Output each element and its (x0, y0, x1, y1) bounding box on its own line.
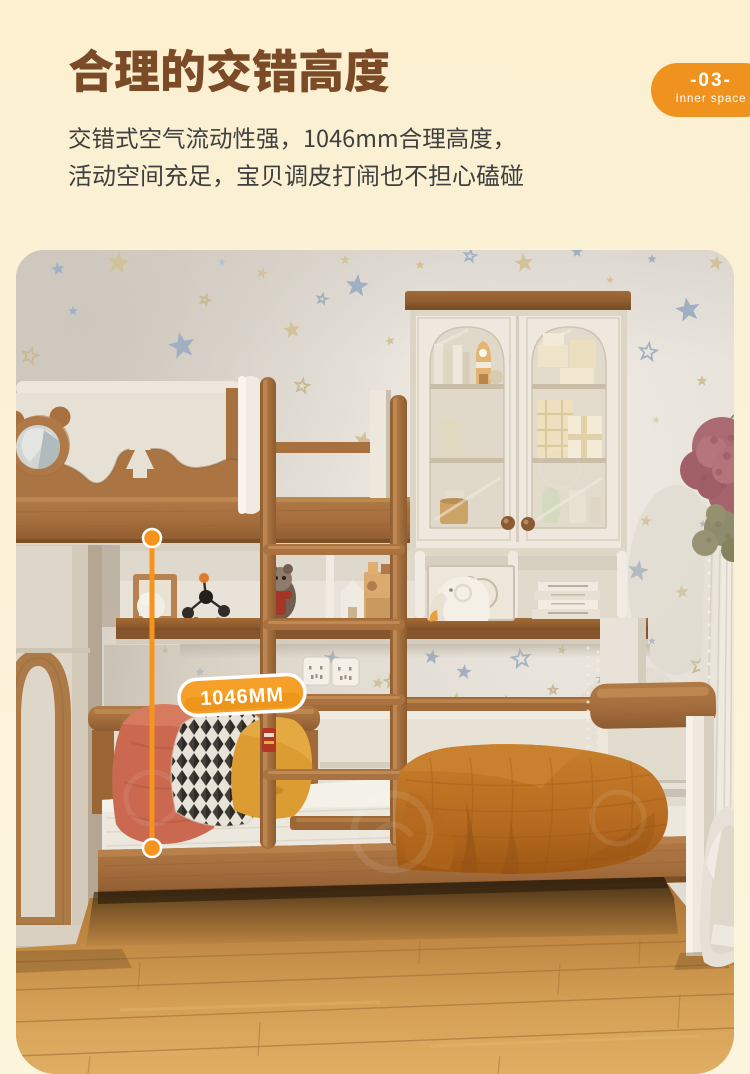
svg-text:1046MM: 1046MM (200, 684, 285, 710)
